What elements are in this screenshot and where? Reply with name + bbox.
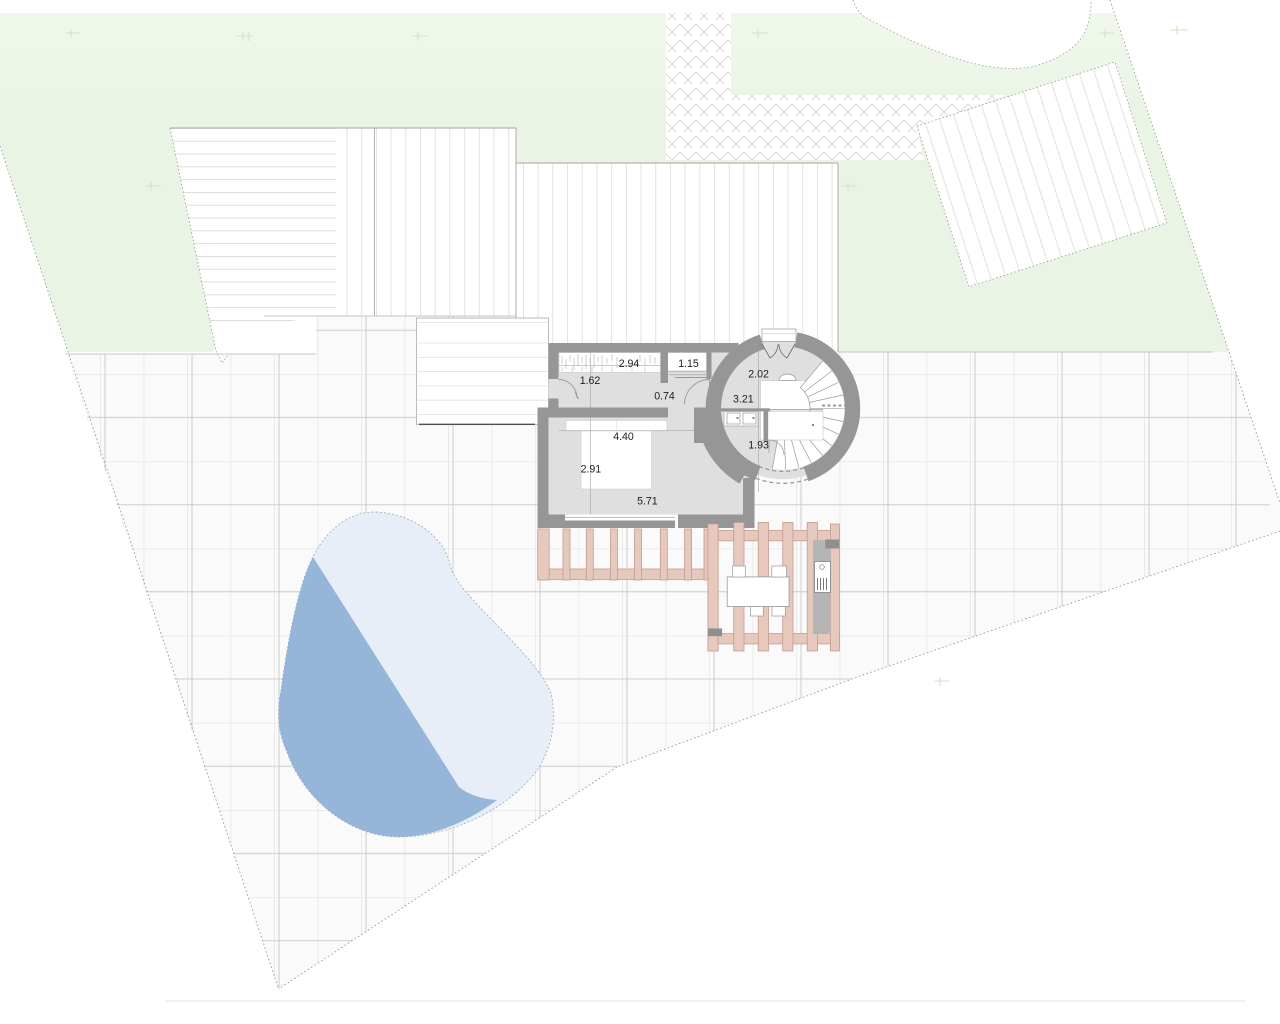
svg-text:1.15: 1.15 bbox=[678, 358, 699, 370]
svg-text:1.62: 1.62 bbox=[580, 375, 601, 387]
svg-text:4.40: 4.40 bbox=[613, 431, 634, 443]
svg-text:3.21: 3.21 bbox=[733, 394, 754, 406]
svg-text:2.94: 2.94 bbox=[619, 358, 640, 370]
svg-text:0.74: 0.74 bbox=[654, 391, 675, 403]
svg-text:5.71: 5.71 bbox=[637, 496, 658, 508]
svg-text:2.91: 2.91 bbox=[581, 464, 602, 476]
svg-text:1.93: 1.93 bbox=[748, 440, 769, 452]
svg-text:2.02: 2.02 bbox=[748, 369, 769, 381]
